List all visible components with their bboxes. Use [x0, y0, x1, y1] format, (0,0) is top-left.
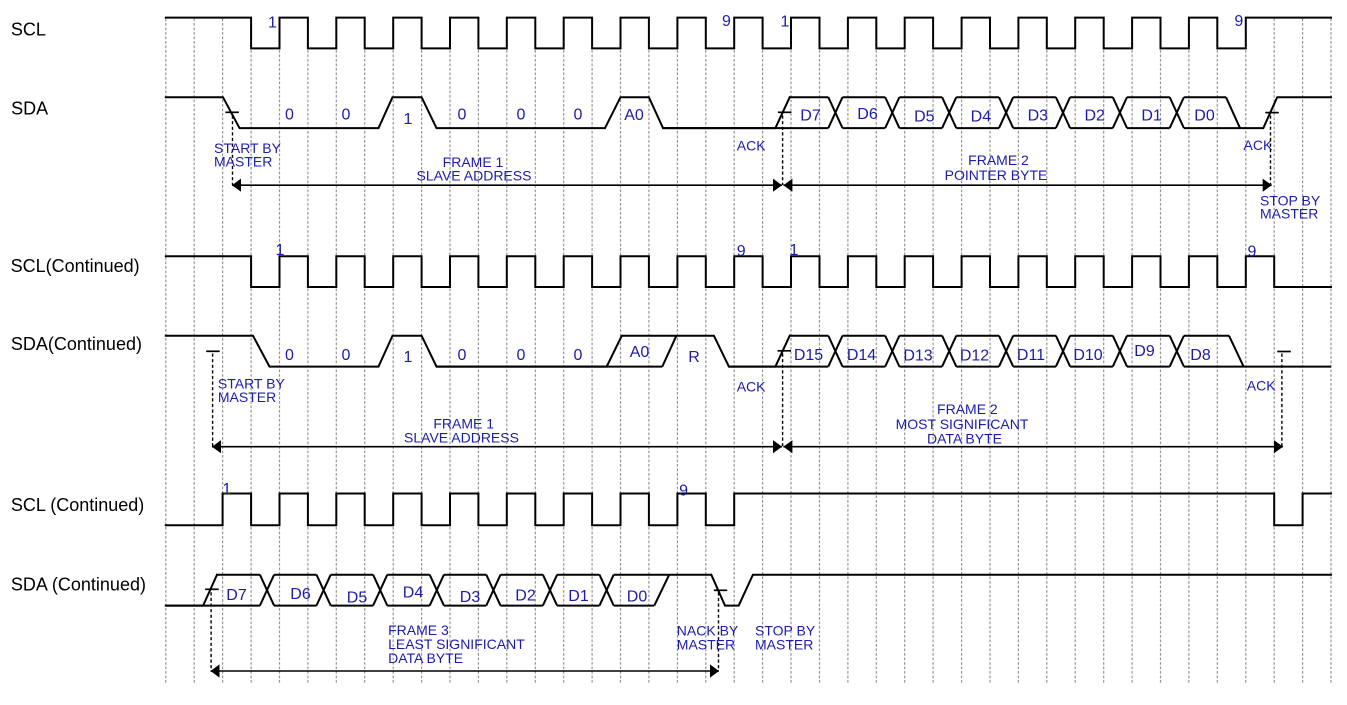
svg-text:DATA BYTE: DATA BYTE: [927, 431, 1002, 447]
svg-text:ACK: ACK: [737, 138, 766, 154]
svg-text:MASTER: MASTER: [1260, 206, 1318, 222]
svg-text:D3: D3: [1028, 108, 1049, 125]
svg-text:0: 0: [574, 107, 583, 124]
svg-text:D4: D4: [403, 585, 424, 602]
svg-text:SDA (Continued): SDA (Continued): [11, 575, 146, 595]
svg-text:ACK: ACK: [1247, 377, 1276, 393]
svg-text:SDA: SDA: [11, 99, 48, 119]
svg-text:D13: D13: [903, 348, 932, 365]
svg-text:SLAVE ADDRESS: SLAVE ADDRESS: [417, 167, 532, 183]
svg-text:D3: D3: [460, 589, 481, 606]
svg-text:9: 9: [1247, 244, 1256, 261]
svg-text:1: 1: [404, 349, 413, 366]
svg-text:0: 0: [458, 347, 467, 364]
svg-text:MASTER: MASTER: [218, 389, 276, 405]
svg-text:9: 9: [679, 482, 688, 499]
svg-text:0: 0: [458, 107, 467, 124]
svg-text:0: 0: [517, 347, 526, 364]
svg-text:ACK: ACK: [737, 378, 766, 394]
svg-text:MASTER: MASTER: [677, 636, 735, 652]
svg-text:0: 0: [285, 347, 294, 364]
svg-text:D2: D2: [515, 588, 536, 605]
svg-text:1: 1: [790, 242, 799, 259]
svg-text:SCL(Continued): SCL(Continued): [11, 256, 140, 276]
svg-text:R: R: [688, 349, 700, 366]
svg-text:POINTER BYTE: POINTER BYTE: [945, 167, 1048, 183]
svg-text:D6: D6: [857, 106, 878, 123]
svg-text:D5: D5: [347, 590, 368, 607]
svg-text:1: 1: [222, 481, 231, 498]
svg-text:D9: D9: [1134, 343, 1155, 360]
svg-text:0: 0: [517, 107, 526, 124]
svg-text:MOST SIGNIFICANT: MOST SIGNIFICANT: [896, 416, 1029, 432]
svg-text:A0: A0: [624, 107, 644, 124]
svg-text:1: 1: [404, 111, 413, 128]
svg-text:D14: D14: [847, 347, 876, 364]
svg-text:ACK: ACK: [1244, 137, 1273, 153]
svg-text:1: 1: [276, 242, 285, 259]
svg-text:D11: D11: [1017, 347, 1045, 364]
svg-text:D5: D5: [914, 109, 935, 126]
svg-text:9: 9: [722, 13, 731, 30]
svg-text:D1: D1: [1141, 108, 1162, 125]
svg-text:DATA BYTE: DATA BYTE: [388, 650, 463, 666]
svg-text:SCL (Continued): SCL (Continued): [11, 495, 144, 515]
svg-text:D15: D15: [794, 347, 823, 364]
svg-text:D0: D0: [627, 589, 648, 606]
svg-text:A0: A0: [630, 344, 650, 361]
svg-text:9: 9: [1234, 13, 1243, 30]
svg-text:D1: D1: [568, 588, 589, 605]
svg-text:D7: D7: [800, 108, 821, 125]
svg-text:1: 1: [268, 14, 277, 31]
svg-text:D2: D2: [1084, 108, 1105, 125]
svg-text:SLAVE ADDRESS: SLAVE ADDRESS: [404, 430, 519, 446]
svg-text:SCL: SCL: [11, 20, 46, 40]
svg-text:0: 0: [285, 107, 294, 124]
svg-text:SDA(Continued): SDA(Continued): [11, 334, 142, 354]
svg-text:0: 0: [342, 107, 351, 124]
svg-text:D4: D4: [971, 109, 992, 126]
svg-text:D7: D7: [226, 587, 247, 604]
svg-text:0: 0: [574, 347, 583, 364]
svg-text:1: 1: [781, 14, 790, 31]
svg-text:FRAME 2: FRAME 2: [968, 152, 1029, 168]
svg-text:0: 0: [342, 347, 351, 364]
svg-text:MASTER: MASTER: [755, 636, 813, 652]
svg-text:D8: D8: [1190, 347, 1211, 364]
svg-text:D0: D0: [1194, 108, 1215, 125]
svg-text:FRAME 2: FRAME 2: [937, 401, 998, 417]
svg-text:9: 9: [737, 243, 746, 260]
svg-text:D6: D6: [290, 586, 311, 603]
svg-text:D12: D12: [960, 348, 989, 365]
svg-text:MASTER: MASTER: [214, 154, 272, 170]
svg-text:D10: D10: [1073, 347, 1102, 364]
